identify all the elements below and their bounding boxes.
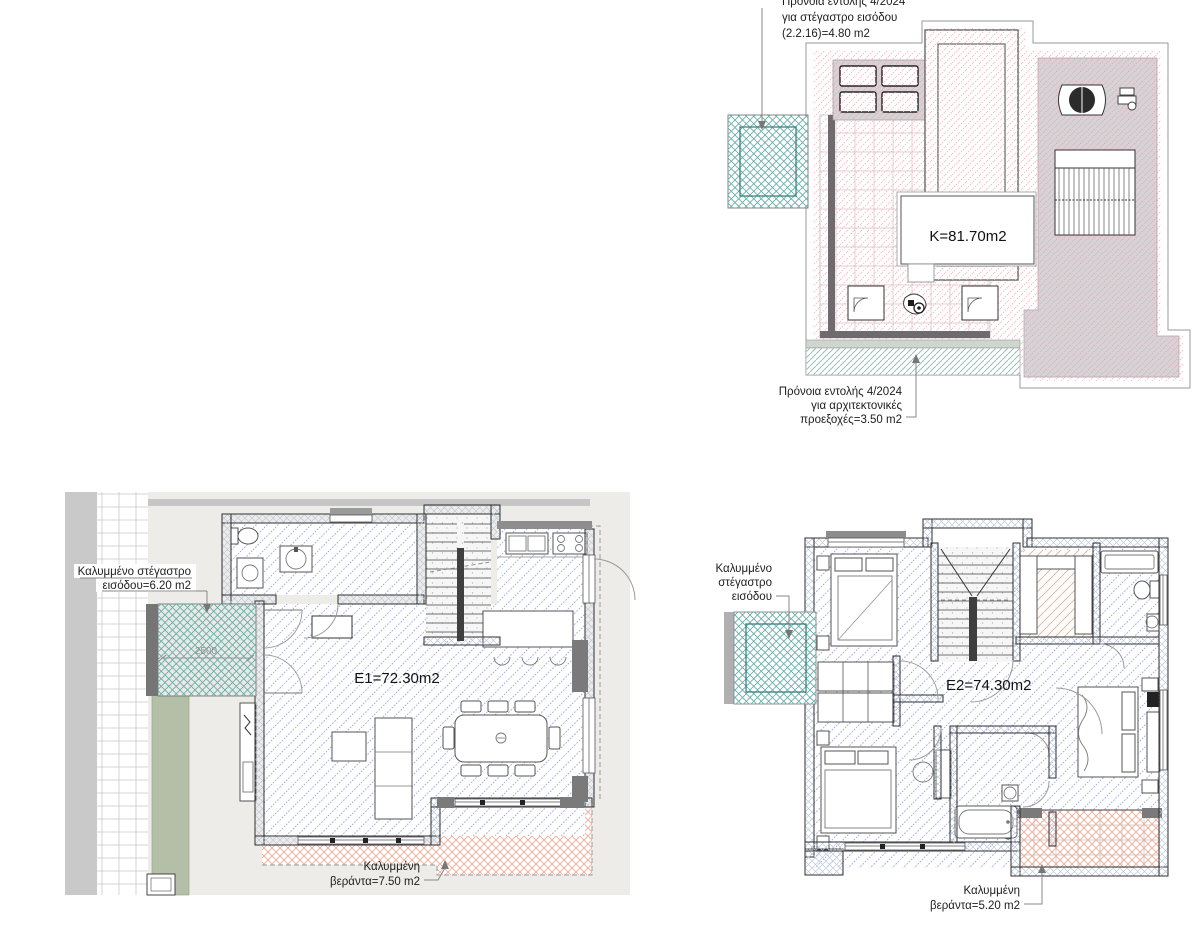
kitchen-sink [506,533,548,554]
roof-projection-note-line3: προεξοχές=3.50 m2 [800,414,902,426]
e1-veranda-note-line2: βεράντα=7.50 m2 [330,876,420,888]
garden-strip [152,695,189,895]
ac-fan-unit [1059,85,1106,115]
roof-canopy-note-line1: Πρόνοια εντολής 4/2024 [782,0,906,8]
coffee-table [332,732,366,761]
e2-walkin-closet [1020,550,1093,638]
roof-canopy-note-line2: για στέγαστρο εισόδου [782,12,897,24]
solar-panels-unit [833,60,925,120]
roof-entrance-canopy [728,115,808,208]
floor2-plan [724,519,1168,876]
washing-machine [237,558,263,588]
e2-entrance-canopy [724,612,816,704]
roof-plan [728,21,1190,388]
bed-1 [831,554,897,646]
roof-area-label: K=81.70m2 [929,228,1006,245]
leader-e2-veranda [1024,872,1042,904]
e1-canopy-note-line2: εισόδου=6.20 m2 [102,580,191,592]
toilet [231,528,258,544]
bathtub [955,806,1017,838]
electrical-cabinet [240,703,256,801]
e1-veranda-note-line1: Καλυμμένη [364,861,420,873]
roof-projection-note-line2: για αρχιτεκτονικές [811,400,902,412]
nightstand [817,556,829,570]
roof-canopy-note-line3: (2.2.16)=4.80 m2 [782,28,870,40]
kitchen-window-sill [497,521,592,529]
parapet-shadow-left [828,115,835,338]
e2-veranda-note-line2: βεράντα=5.20 m2 [930,900,1020,912]
e1-canopy-note-line1: Καλυμμένο στέγαστρο [78,566,191,578]
canopy-dimension-text: 2500 [195,646,218,657]
roof-projection-note-line1: Πρόνοια εντολής 4/2024 [779,386,903,398]
nightstand [1142,678,1158,691]
nightstand [817,636,829,650]
floor1-plan: 2500 [65,492,635,895]
neighbor-wall-strip [65,492,97,895]
washbasin [280,546,312,572]
fireplace-unit [1147,692,1160,707]
projection-strip [806,340,1020,375]
e2-canopy-note-line3: εισόδου [732,591,772,603]
e2-veranda [1017,808,1162,868]
e2-area-label: E2=74.30m2 [946,677,1031,694]
e2-canopy-note-line2: στέγαστρο [718,577,772,589]
e2-canopy-note-line1: Καλυμμένο [716,563,772,575]
cooktop [553,533,587,554]
solar-water-heater [1055,150,1135,235]
nightstand [1142,780,1158,793]
e1-area-label: E1=72.30m2 [354,670,439,687]
wardrobe-strip [1147,712,1160,772]
drawing-canvas: 2500 [0,0,1200,927]
plans-drawing: 2500 [0,0,1200,927]
nightstand [817,731,829,745]
parapet-shadow-bottom [820,331,990,338]
sofa [375,718,412,819]
bed-2 [821,747,896,833]
e1-entrance-canopy: 2500 [146,604,256,696]
e2-veranda-note-line1: Καλυμμένη [964,885,1020,897]
